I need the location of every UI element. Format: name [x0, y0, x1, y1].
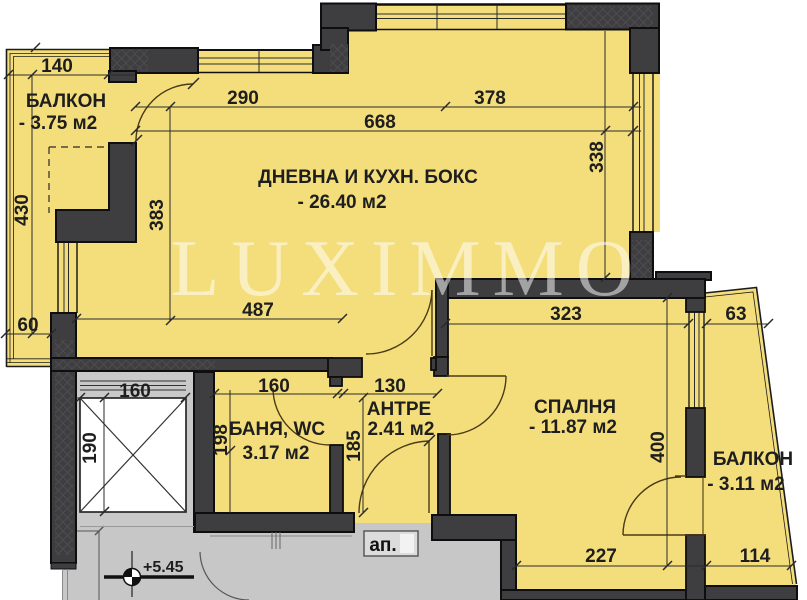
- svg-text:СПАЛНЯ: СПАЛНЯ: [534, 397, 616, 418]
- svg-text:БАЛКОН: БАЛКОН: [713, 449, 793, 470]
- svg-text:ДНЕВНА И КУХН. БОКС: ДНЕВНА И КУХН. БОКС: [258, 167, 478, 188]
- svg-text:430: 430: [12, 194, 33, 226]
- svg-text:185: 185: [344, 430, 365, 462]
- svg-text:400: 400: [648, 431, 669, 463]
- svg-text:- 3.11 м2: - 3.11 м2: [707, 474, 784, 495]
- svg-text:- 11.87 м2: - 11.87 м2: [529, 417, 617, 438]
- svg-text:668: 668: [364, 112, 396, 133]
- svg-text:63: 63: [725, 304, 746, 325]
- svg-text:160: 160: [119, 381, 151, 402]
- svg-text:60: 60: [17, 315, 38, 336]
- svg-text:БАЛКОН: БАЛКОН: [26, 91, 106, 112]
- svg-text:190: 190: [80, 432, 101, 464]
- svg-text:160: 160: [258, 376, 290, 397]
- svg-text:383: 383: [147, 199, 168, 231]
- svg-text:2.41 м2: 2.41 м2: [368, 419, 435, 440]
- svg-text:227: 227: [585, 546, 617, 567]
- svg-text:290: 290: [227, 88, 259, 109]
- svg-text:130: 130: [374, 376, 406, 397]
- svg-text:378: 378: [474, 88, 506, 109]
- svg-text:АНТРЕ: АНТРЕ: [367, 399, 431, 420]
- svg-text:338: 338: [587, 141, 608, 173]
- svg-text:БАНЯ, WC: БАНЯ, WC: [229, 419, 326, 440]
- svg-text:3.17 м2: 3.17 м2: [243, 443, 310, 464]
- svg-text:+5.45: +5.45: [143, 559, 184, 576]
- svg-text:LUXIMMO: LUXIMMO: [170, 225, 645, 313]
- svg-text:140: 140: [41, 56, 73, 77]
- svg-text:- 26.40 м2: - 26.40 м2: [297, 192, 386, 213]
- svg-text:ап.: ап.: [369, 535, 396, 556]
- svg-text:- 3.75 м2: - 3.75 м2: [19, 113, 98, 134]
- svg-text:114: 114: [740, 546, 771, 567]
